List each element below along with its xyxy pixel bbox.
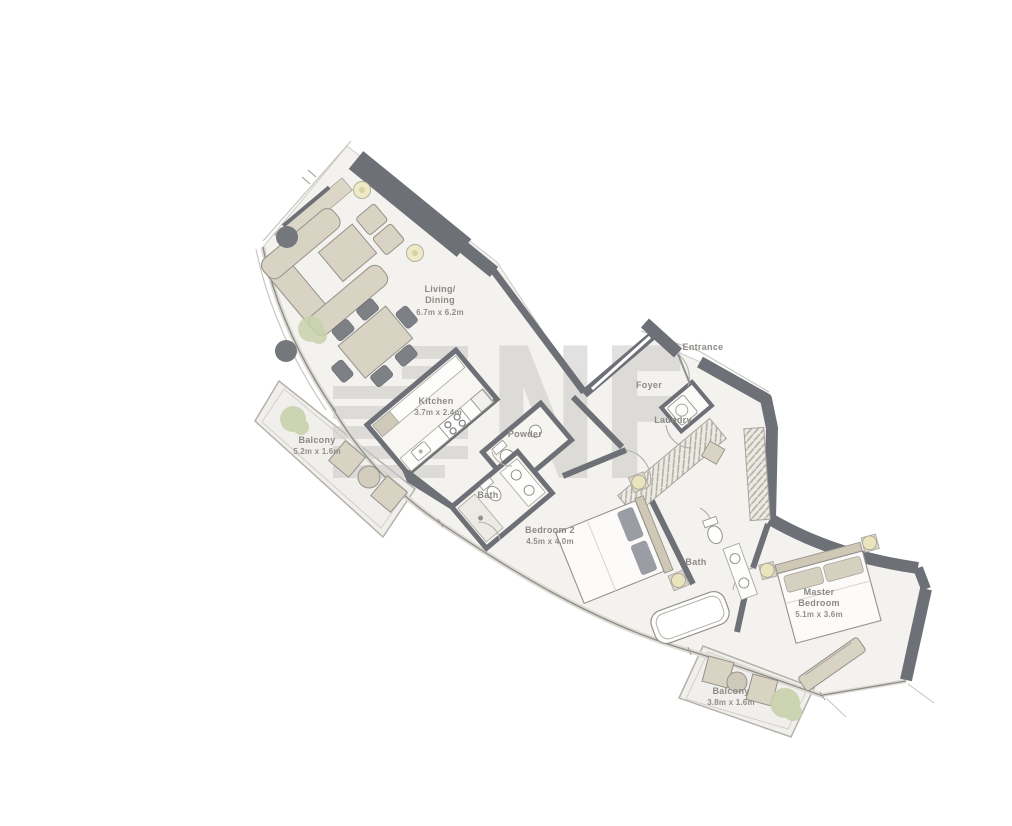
master-label: Master xyxy=(804,587,835,597)
balcony-bottom-label: Balcony xyxy=(712,686,749,696)
living-dining-label: Living/ xyxy=(424,284,455,294)
bath2-label: Bath xyxy=(685,557,706,567)
ceiling-light-icon xyxy=(354,182,371,199)
balcony-left-dims: 5.2m x 1.6m xyxy=(293,447,341,456)
powder-label: Powder xyxy=(508,429,543,439)
bath1-label: Bath xyxy=(477,490,498,500)
balcony-bottom-dims: 3.8m x 1.6m xyxy=(707,698,755,707)
bedroom2-dims: 4.5m x 4.0m xyxy=(526,537,574,546)
planter-column-icon xyxy=(276,226,298,248)
ceiling-light2-icon xyxy=(407,245,424,262)
balcony-left-label: Balcony xyxy=(298,435,335,445)
living-dining-label-2: Dining xyxy=(425,295,455,305)
bedroom2-label: Bedroom 2 xyxy=(525,525,575,535)
planter-column2-icon xyxy=(275,340,297,362)
master-label-2: Bedroom xyxy=(798,598,840,608)
kitchen-dims: 3.7m x 2.4m xyxy=(414,408,462,417)
floor-plan-drawing: NF xyxy=(0,0,1012,826)
floor-plan-page: NF xyxy=(0,0,1012,826)
living-dining-dims: 6.7m x 6.2m xyxy=(416,308,464,317)
laundry-label: Laundry xyxy=(654,415,692,425)
master-dims: 5.1m x 3.6m xyxy=(795,610,843,619)
kitchen-label: Kitchen xyxy=(418,396,453,406)
balcony-table xyxy=(358,466,380,488)
foyer-label: Foyer xyxy=(636,380,662,390)
entrance-label: Entrance xyxy=(683,342,724,352)
